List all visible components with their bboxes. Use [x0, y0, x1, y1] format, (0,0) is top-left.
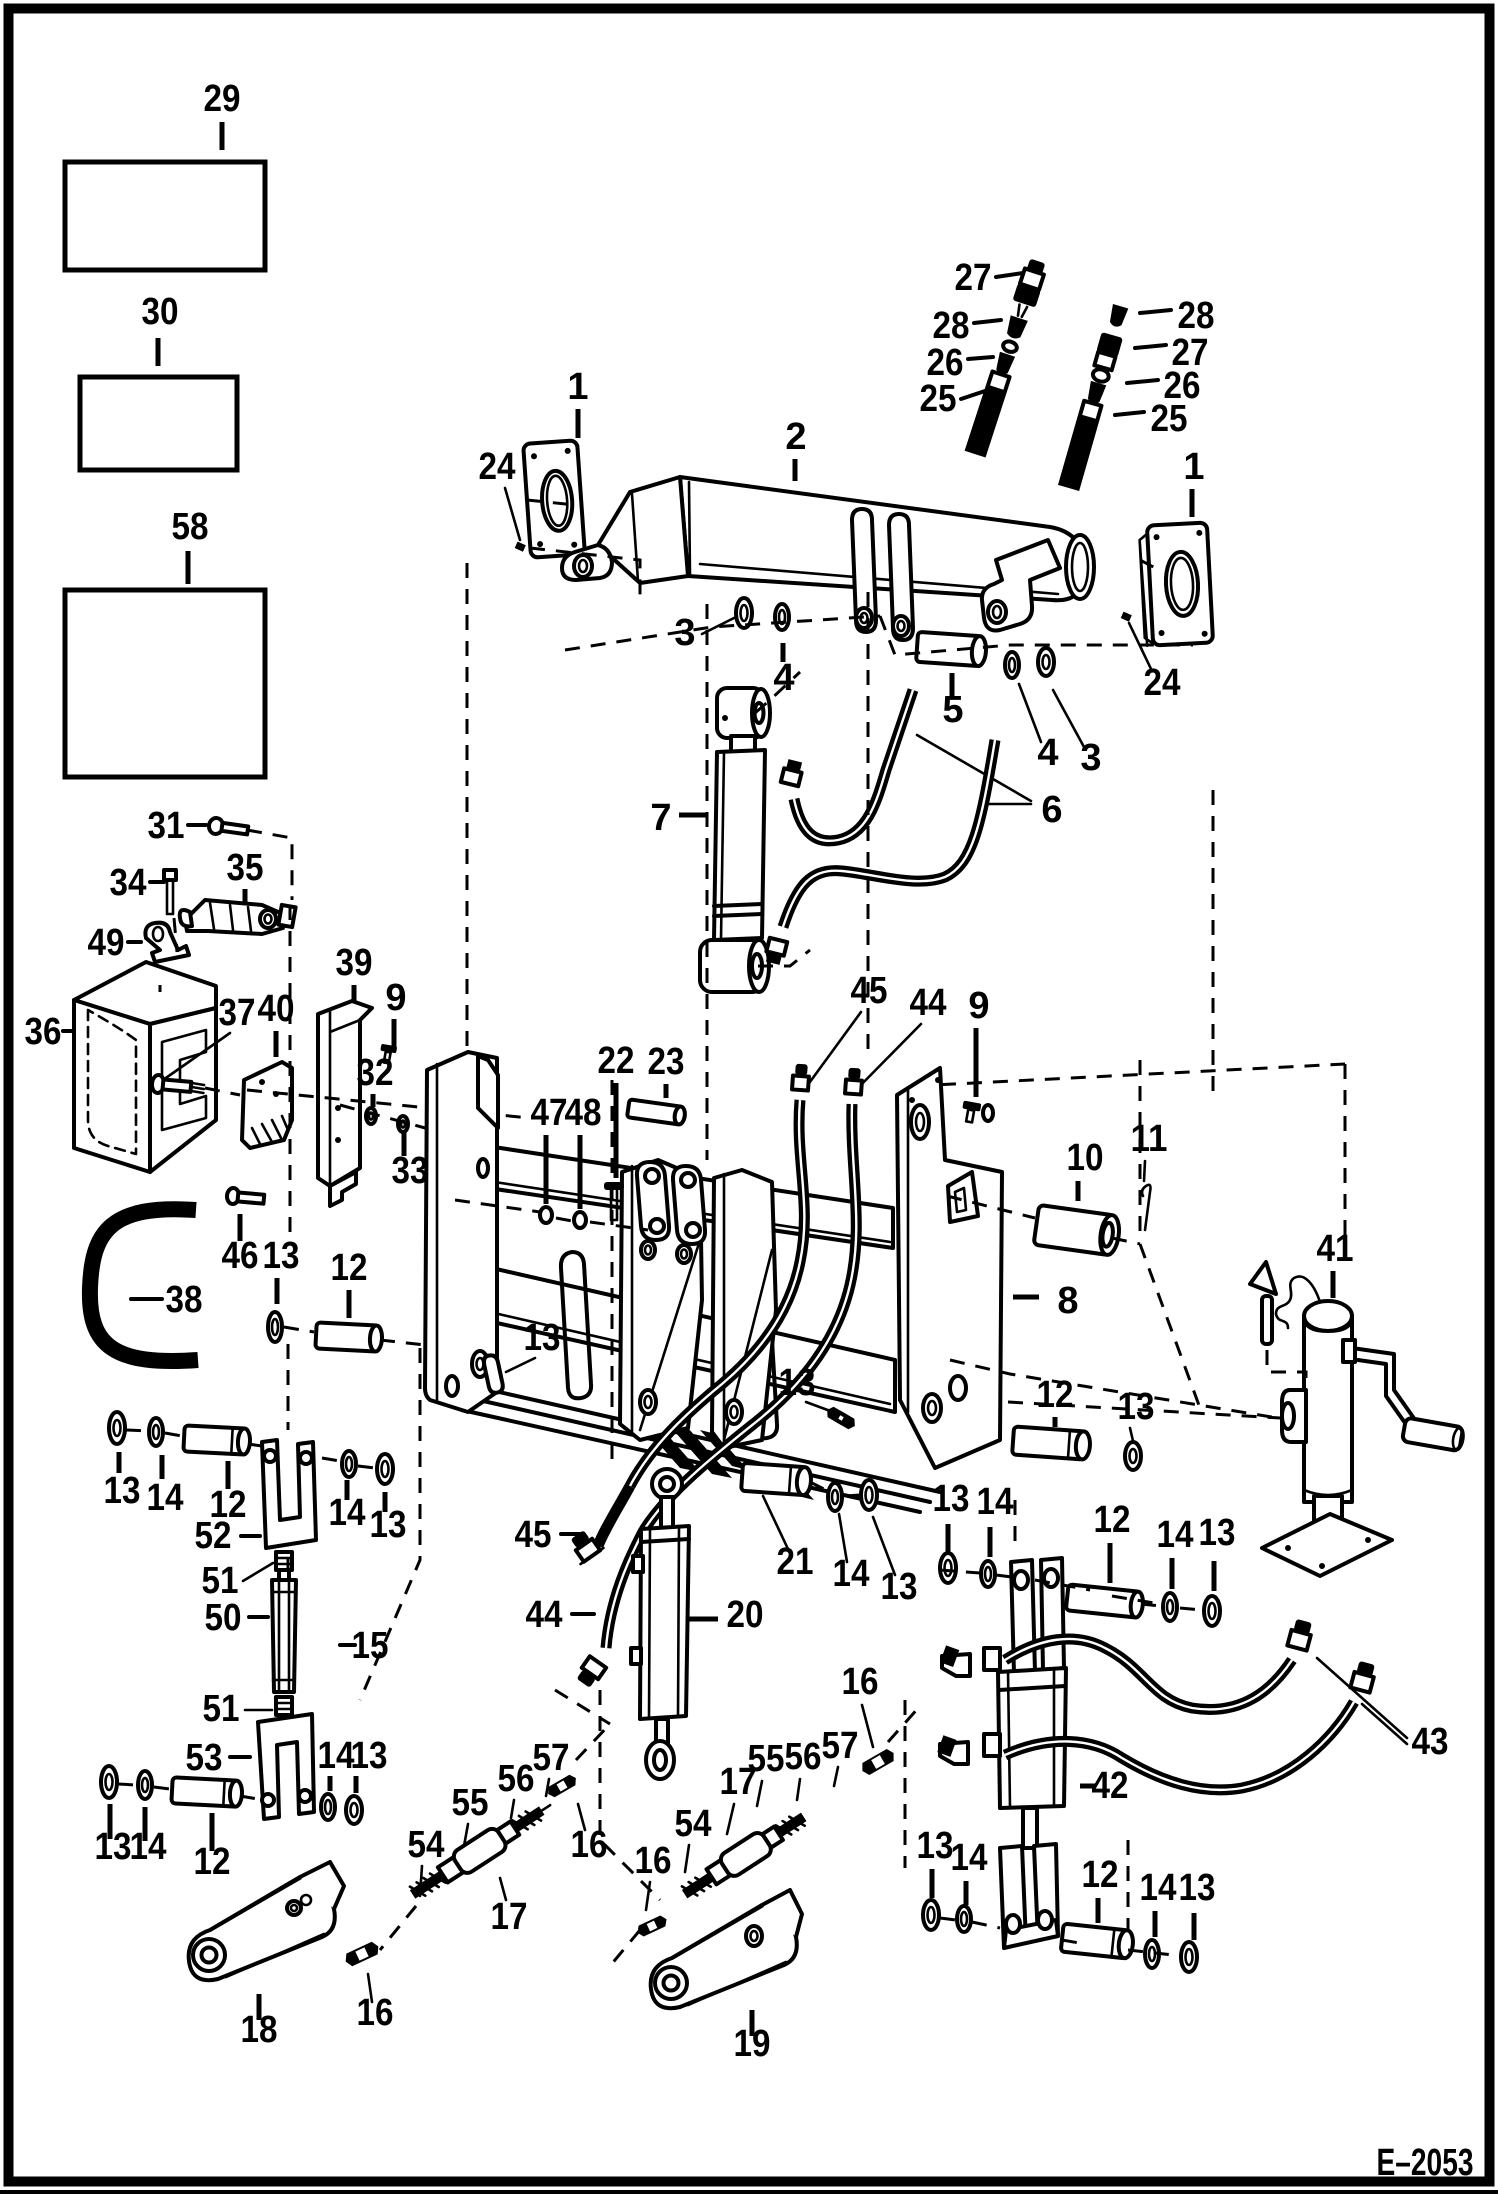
svg-text:33: 33 [392, 1150, 429, 1192]
svg-text:12: 12 [1037, 1374, 1074, 1416]
svg-text:27: 27 [955, 257, 992, 299]
svg-text:39: 39 [336, 942, 373, 984]
svg-text:44: 44 [526, 1594, 563, 1636]
svg-text:13: 13 [263, 1235, 300, 1277]
svg-text:50: 50 [205, 1597, 242, 1639]
svg-text:25: 25 [1151, 398, 1188, 440]
svg-text:57: 57 [533, 1737, 570, 1779]
svg-text:14: 14 [1157, 1514, 1194, 1556]
svg-text:E–2053: E–2053 [1377, 2142, 1474, 2184]
svg-text:38: 38 [166, 1279, 203, 1321]
svg-text:51: 51 [202, 1560, 239, 1602]
svg-text:48: 48 [565, 1092, 602, 1134]
svg-text:14: 14 [1140, 1867, 1177, 1909]
svg-text:35: 35 [227, 847, 264, 889]
svg-text:22: 22 [598, 1040, 635, 1082]
svg-text:14: 14 [833, 1553, 870, 1595]
svg-text:9: 9 [385, 977, 406, 1019]
svg-text:13: 13 [933, 1478, 970, 1520]
svg-text:17: 17 [720, 1761, 757, 1803]
svg-text:28: 28 [933, 305, 970, 347]
svg-text:11: 11 [1131, 1118, 1168, 1160]
svg-text:23: 23 [648, 1041, 685, 1083]
svg-text:24: 24 [479, 446, 516, 488]
svg-text:13: 13 [917, 1825, 954, 1867]
svg-text:41: 41 [1317, 1228, 1354, 1270]
svg-text:16: 16 [357, 1992, 394, 2034]
svg-text:36: 36 [25, 1011, 62, 1053]
svg-text:13: 13 [1118, 1386, 1155, 1428]
svg-text:13: 13 [104, 1470, 141, 1512]
svg-text:13: 13 [95, 1826, 132, 1868]
svg-text:34: 34 [110, 862, 147, 904]
svg-text:7: 7 [650, 797, 671, 839]
svg-text:31: 31 [148, 805, 185, 847]
svg-text:1: 1 [567, 366, 588, 408]
svg-text:42: 42 [1092, 1765, 1129, 1807]
svg-text:16: 16 [842, 1661, 879, 1703]
svg-text:43: 43 [1412, 1721, 1449, 1763]
svg-text:14: 14 [951, 1837, 988, 1879]
svg-text:46: 46 [222, 1235, 259, 1277]
svg-text:20: 20 [727, 1594, 764, 1636]
svg-text:12: 12 [1094, 1499, 1131, 1541]
svg-text:45: 45 [515, 1514, 552, 1556]
svg-text:54: 54 [408, 1824, 445, 1866]
svg-text:12: 12 [1082, 1854, 1119, 1896]
svg-text:14: 14 [130, 1826, 167, 1868]
svg-text:54: 54 [675, 1803, 712, 1845]
svg-text:53: 53 [186, 1737, 223, 1779]
svg-text:13: 13 [524, 1317, 561, 1359]
svg-text:13: 13 [1199, 1512, 1236, 1554]
svg-text:28: 28 [1178, 295, 1215, 337]
svg-text:55: 55 [452, 1782, 489, 1824]
svg-text:14: 14 [977, 1481, 1014, 1523]
svg-text:15: 15 [352, 1625, 389, 1667]
svg-text:30: 30 [142, 291, 179, 333]
svg-text:58: 58 [172, 506, 209, 548]
svg-text:47: 47 [531, 1092, 568, 1134]
svg-text:56: 56 [498, 1758, 535, 1800]
svg-text:14: 14 [147, 1477, 184, 1519]
svg-text:37: 37 [219, 992, 256, 1034]
svg-text:29: 29 [204, 78, 241, 120]
svg-text:56: 56 [785, 1736, 822, 1778]
svg-text:13: 13 [351, 1735, 388, 1777]
svg-text:13: 13 [779, 1362, 816, 1404]
svg-text:16: 16 [571, 1824, 608, 1866]
svg-text:8: 8 [1057, 1280, 1078, 1322]
svg-text:52: 52 [195, 1515, 232, 1557]
svg-text:49: 49 [88, 922, 125, 964]
svg-text:1: 1 [1183, 446, 1204, 488]
svg-text:24: 24 [1144, 662, 1181, 704]
svg-text:2: 2 [785, 416, 806, 458]
svg-text:6: 6 [1041, 789, 1062, 831]
svg-text:16: 16 [635, 1840, 672, 1882]
svg-text:32: 32 [357, 1052, 394, 1094]
svg-text:51: 51 [203, 1688, 240, 1730]
svg-text:17: 17 [491, 1896, 528, 1938]
svg-text:10: 10 [1067, 1137, 1104, 1179]
svg-text:9: 9 [968, 985, 989, 1027]
svg-text:21: 21 [777, 1541, 814, 1583]
svg-text:13: 13 [1179, 1867, 1216, 1909]
svg-text:12: 12 [331, 1247, 368, 1289]
svg-text:44: 44 [910, 982, 947, 1024]
svg-text:13: 13 [881, 1566, 918, 1608]
svg-text:57: 57 [822, 1725, 859, 1767]
svg-text:3: 3 [1080, 737, 1101, 779]
svg-text:13: 13 [370, 1504, 407, 1546]
svg-text:14: 14 [318, 1735, 355, 1777]
svg-text:25: 25 [920, 378, 957, 420]
